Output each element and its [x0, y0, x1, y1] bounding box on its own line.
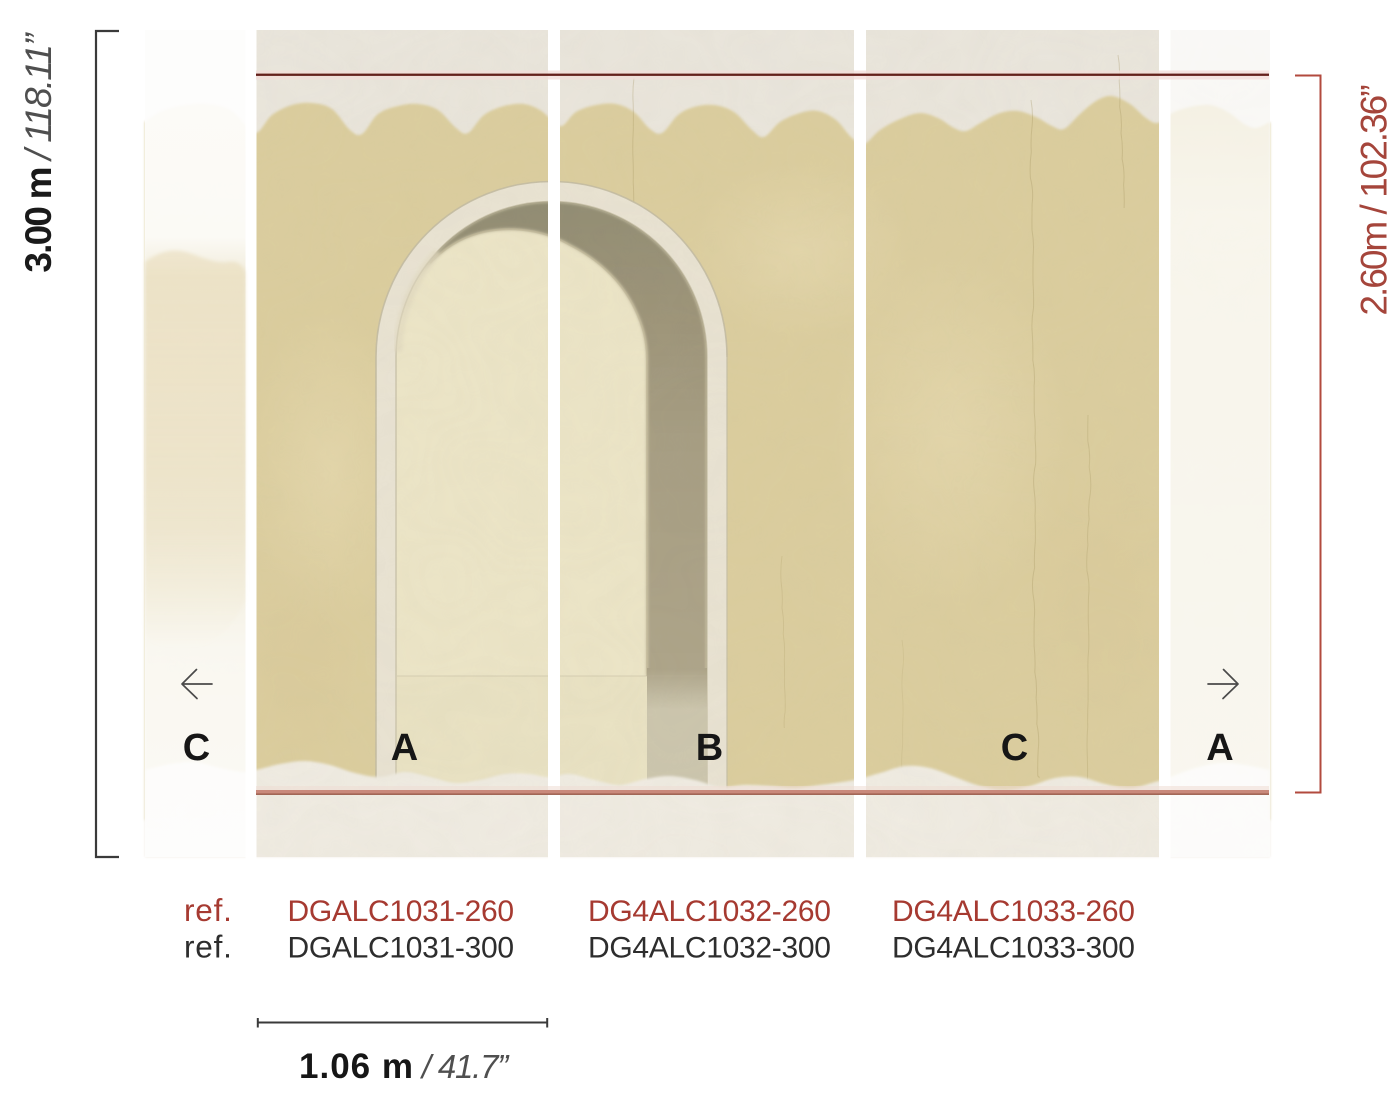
svg-text:C: C [183, 727, 210, 769]
svg-text:DG4ALC1033-300: DG4ALC1033-300 [892, 932, 1135, 965]
svg-text:DG4ALC1032-260: DG4ALC1032-260 [588, 895, 831, 928]
svg-text:ref.: ref. [184, 892, 233, 928]
svg-text:DG4ALC1033-260: DG4ALC1033-260 [892, 895, 1135, 928]
svg-text:B: B [696, 727, 723, 769]
svg-text:C: C [1001, 727, 1028, 769]
svg-text:DGALC1031-300: DGALC1031-300 [288, 932, 514, 965]
svg-text:DG4ALC1032-300: DG4ALC1032-300 [588, 932, 831, 965]
svg-text:1.06 m / 41.7”: 1.06 m / 41.7” [299, 1047, 510, 1086]
svg-text:DGALC1031-260: DGALC1031-260 [288, 895, 514, 928]
svg-text:ref.: ref. [184, 929, 233, 965]
svg-text:A: A [391, 727, 418, 769]
svg-text:3.00 m / 118.11”: 3.00 m / 118.11” [18, 32, 59, 273]
svg-text:2.60m / 102.36”: 2.60m / 102.36” [1354, 86, 1395, 316]
svg-text:A: A [1206, 727, 1233, 769]
